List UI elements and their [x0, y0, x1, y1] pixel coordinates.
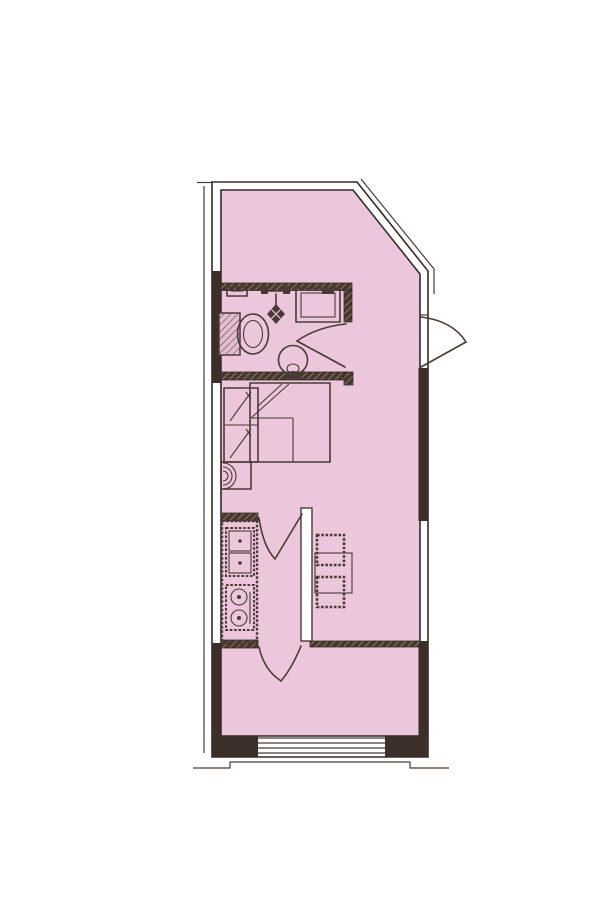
burner-dot [237, 595, 241, 599]
wall-bottom-left [212, 736, 258, 757]
floor-plan-svg [0, 0, 600, 900]
wall-right-middle [419, 368, 429, 521]
balcony-wall-right [310, 641, 420, 647]
bathroom-right-wall [344, 290, 352, 322]
bathroom-bottom-wall [221, 372, 346, 380]
entry-door [419, 315, 466, 367]
sink-drain-dot [238, 539, 241, 542]
floor-plan-page [0, 0, 600, 900]
sink-drain-dot [238, 561, 241, 564]
kitchen-door-jamb [301, 508, 312, 641]
burner-dot [237, 616, 241, 620]
bottom-sill-line [193, 762, 449, 768]
washing-machine-panel [322, 288, 334, 294]
shower-bar-end [283, 286, 290, 294]
shower-bar-end [261, 286, 268, 294]
bathroom-bottom-wall-end [344, 372, 353, 385]
balcony-window [258, 738, 385, 753]
wall-bottom-right [385, 736, 428, 757]
